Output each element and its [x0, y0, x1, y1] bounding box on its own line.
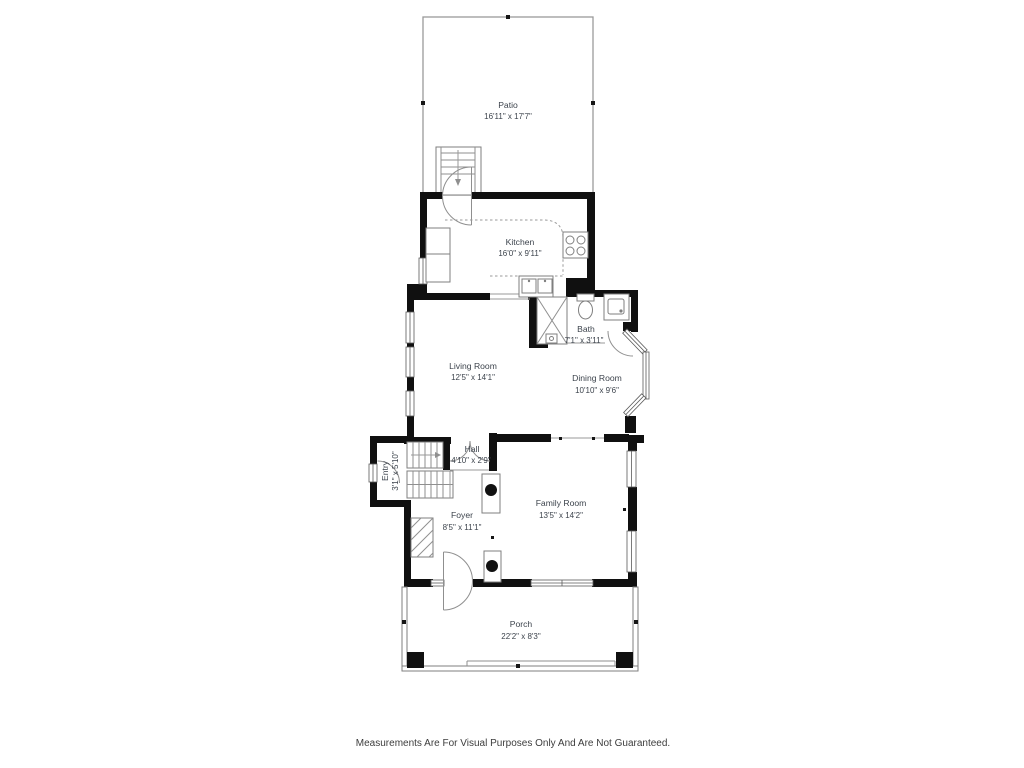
- kitchen-fixtures: [426, 220, 588, 297]
- room-label-entry: Entry: [380, 460, 390, 481]
- dining-bay-windows: [623, 329, 649, 417]
- shower: [537, 297, 567, 344]
- stove: [563, 232, 588, 258]
- room-dims-patio: 16'11" x 17'7": [484, 112, 532, 121]
- room-label-dining-room: Dining Room: [572, 373, 622, 383]
- fireplace: [411, 518, 433, 557]
- room-dims-hall: 4'10" x 2'9": [451, 456, 491, 465]
- room-dims-porch: 22'2" x 8'3": [501, 632, 541, 641]
- room-dims-living-room: 12'5" x 14'1": [451, 373, 495, 382]
- floor-plan-drawing: Patio 16'11" x 17'7" Kitchen 16'0" x 9'1…: [0, 0, 1024, 768]
- porch-post-left: [407, 652, 424, 668]
- front-door: [444, 552, 473, 610]
- room-label-patio: Patio: [498, 100, 518, 110]
- room-label-kitchen: Kitchen: [506, 237, 535, 247]
- room-label-living-room: Living Room: [449, 361, 497, 371]
- room-dims-dining-room: 10'10" x 9'6": [575, 386, 619, 395]
- porch-structure: [402, 587, 638, 671]
- patio-stairs: [436, 147, 481, 195]
- porch-post-right: [616, 652, 633, 668]
- utility-units: [482, 474, 501, 582]
- room-label-porch: Porch: [510, 619, 533, 629]
- room-dims-family-room: 13'5" x 14'2": [539, 511, 583, 520]
- entry-door-opening: [369, 464, 377, 482]
- floor-plan-page: Patio 16'11" x 17'7" Kitchen 16'0" x 9'1…: [0, 0, 1024, 768]
- room-dims-entry: 3'1" x 5'10": [391, 451, 400, 491]
- room-label-bath: Bath: [577, 324, 595, 334]
- bath-sink: [604, 294, 629, 320]
- room-label-family-room: Family Room: [536, 498, 587, 508]
- toilet: [577, 294, 594, 319]
- dimension-ticks: [491, 437, 626, 539]
- room-dims-foyer: 8'5" x 11'1": [443, 523, 482, 532]
- room-dims-bath: 7'1" x 3'11": [565, 336, 604, 345]
- living-room-windows: [406, 312, 414, 416]
- disclaimer-text: Measurements Are For Visual Purposes Onl…: [356, 738, 670, 749]
- room-dims-kitchen: 16'0" x 9'11": [498, 249, 541, 258]
- kitchen-sink: [519, 276, 553, 297]
- room-label-hall: Hall: [465, 444, 480, 454]
- room-label-foyer: Foyer: [451, 510, 473, 520]
- kitchen-cabinets: [426, 228, 450, 282]
